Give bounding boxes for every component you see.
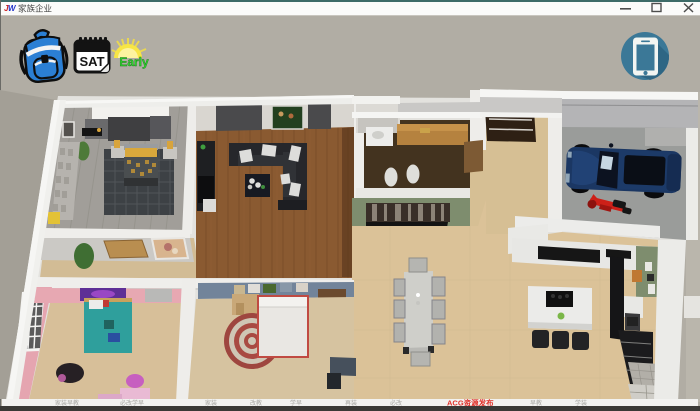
- svg-text:学装: 学装: [575, 399, 587, 407]
- svg-text:SAT: SAT: [79, 54, 104, 69]
- svg-text:改教: 改教: [250, 399, 262, 407]
- svg-text:必改学早: 必改学早: [120, 399, 144, 407]
- svg-text:家装: 家装: [205, 399, 217, 407]
- svg-text:家族企业: 家族企业: [18, 4, 52, 14]
- svg-text:再装: 再装: [345, 399, 357, 407]
- svg-text:Early: Early: [119, 55, 149, 69]
- svg-text:学早: 学早: [290, 399, 302, 407]
- svg-text:家装早教: 家装早教: [55, 399, 79, 407]
- svg-text:早教: 早教: [530, 399, 542, 407]
- svg-text:必改: 必改: [390, 399, 402, 407]
